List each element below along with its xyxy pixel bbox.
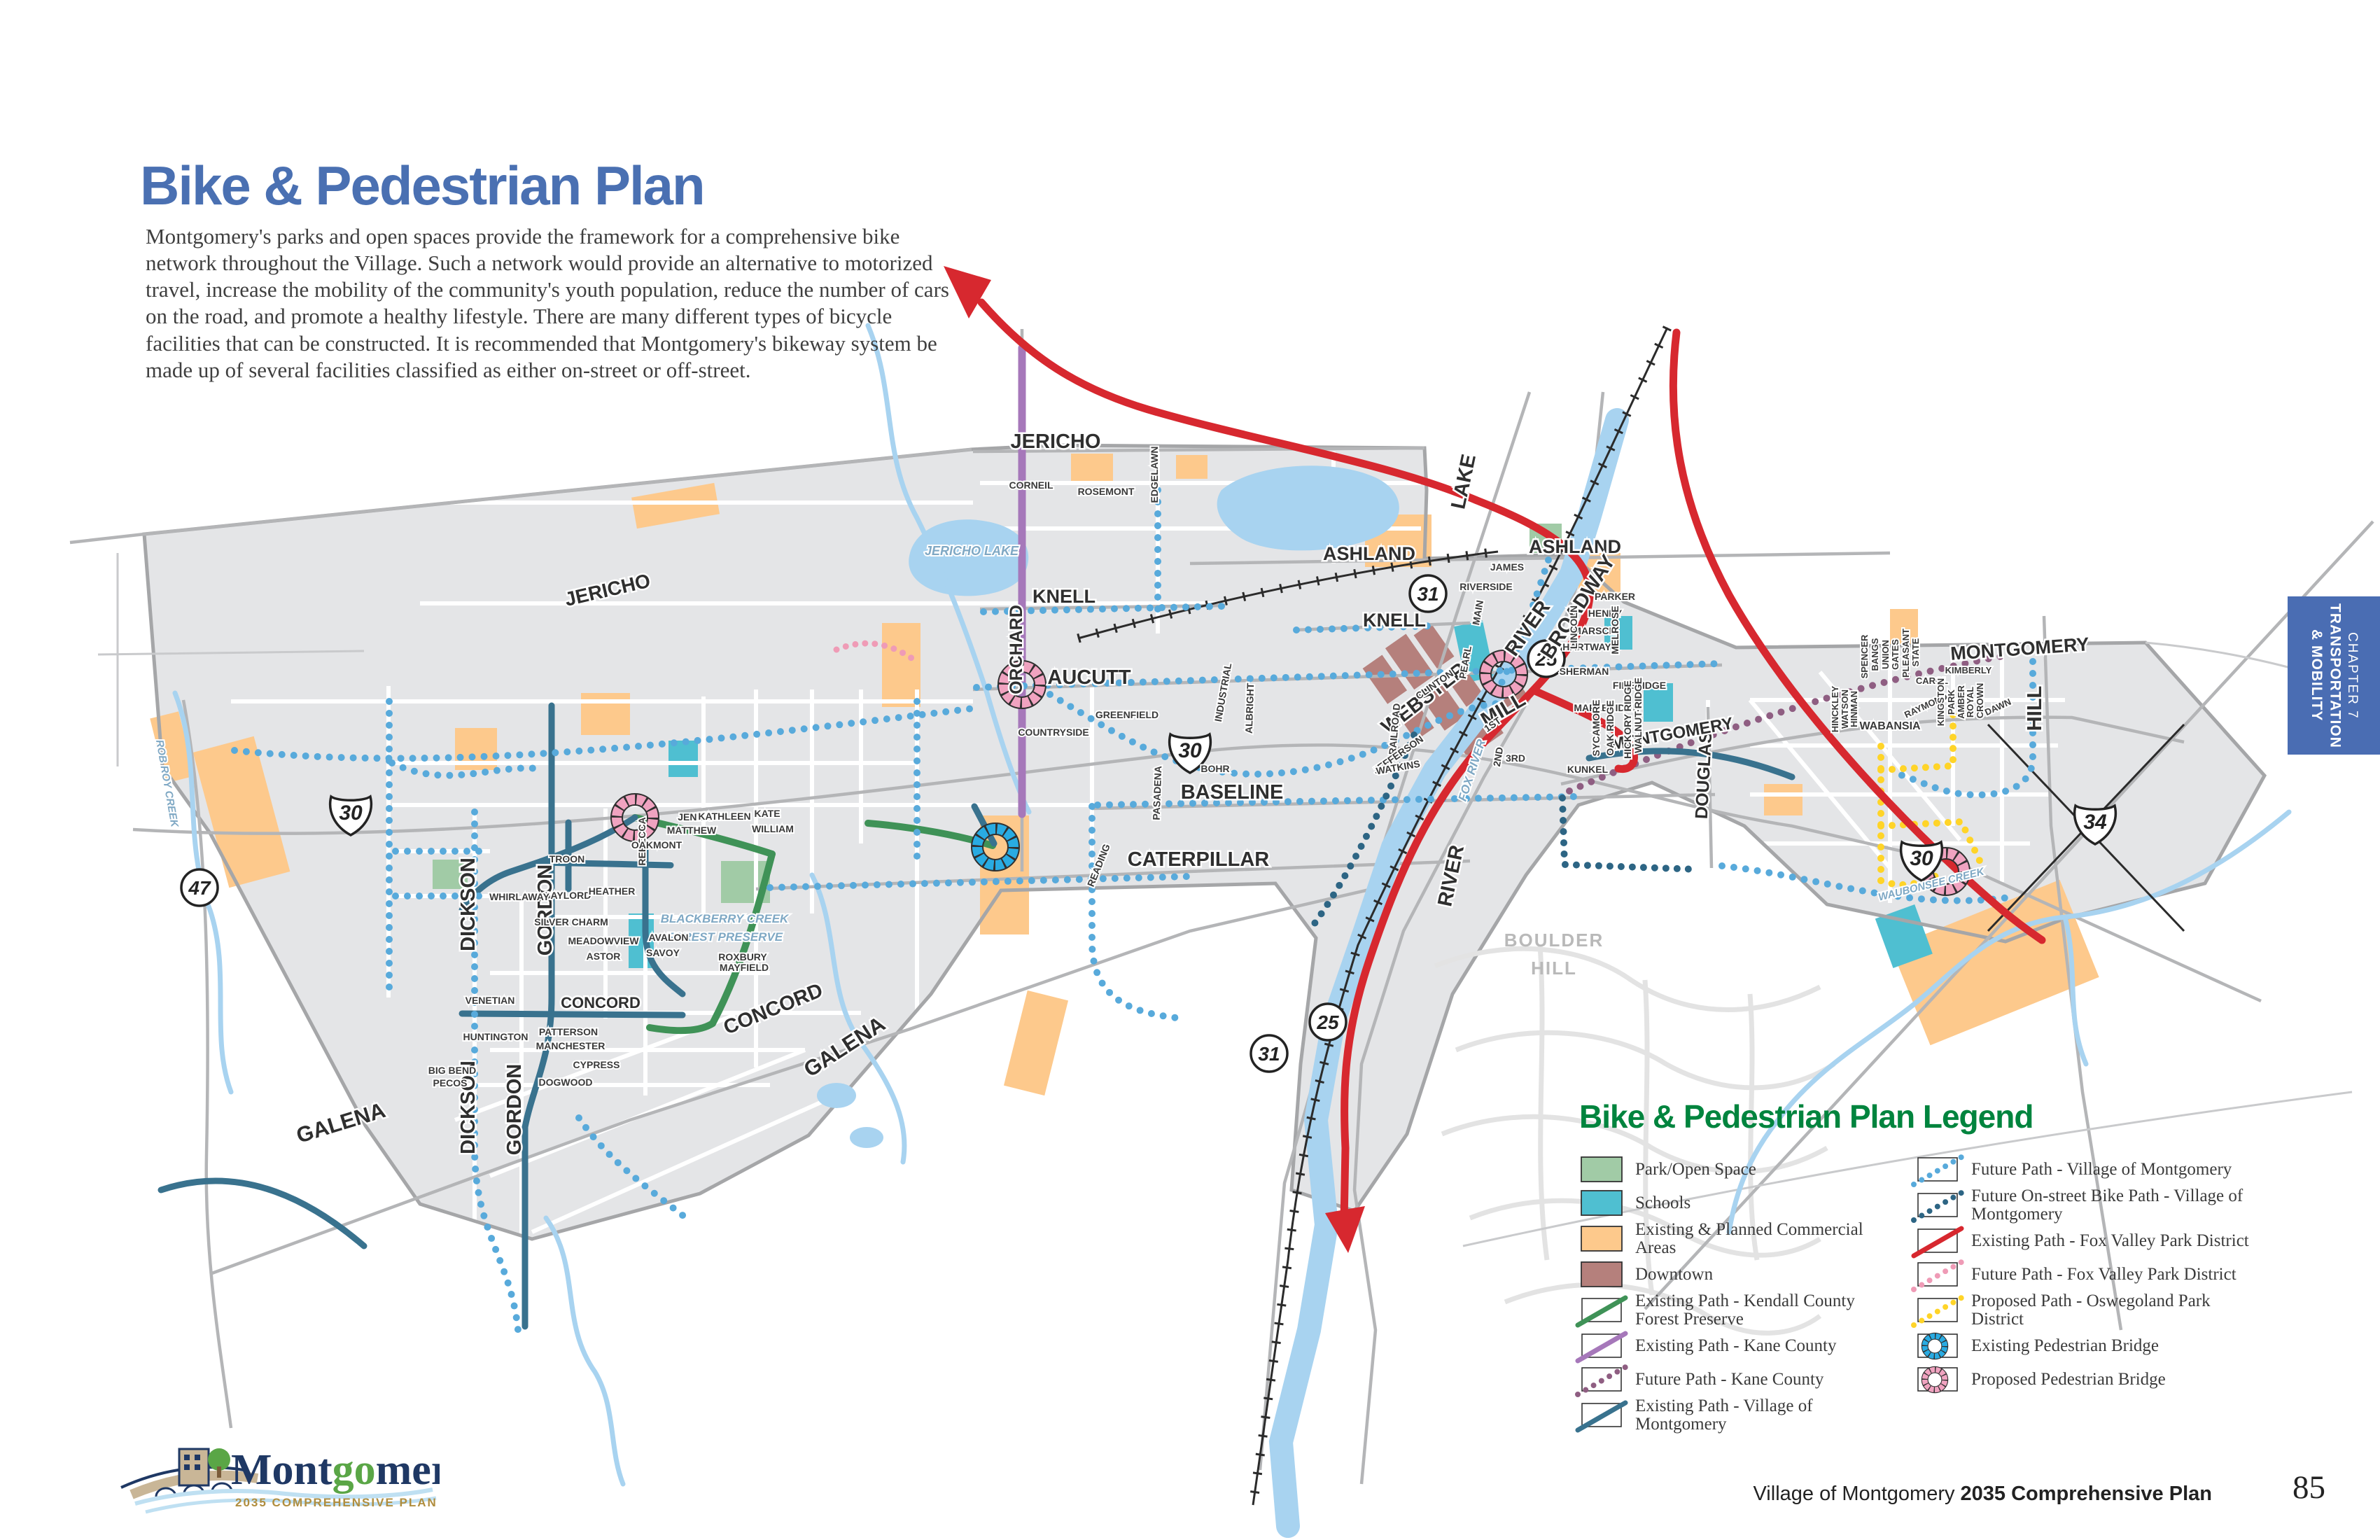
legend-item: Park/Open Space xyxy=(1579,1154,1901,1186)
map-label: WABANSIA xyxy=(1859,720,1921,732)
legend-swatch xyxy=(1579,1223,1631,1255)
bridge-icon xyxy=(1915,1330,1967,1362)
legend-item: Proposed Pedestrian Bridge xyxy=(1915,1364,2265,1396)
legend-swatch xyxy=(1915,1259,1967,1291)
map-label: MANCHESTER xyxy=(536,1040,605,1051)
map-label: DOGWOOD xyxy=(539,1077,593,1088)
legend-column-right: Future Path - Village of MontgomeryFutur… xyxy=(1915,1154,2265,1397)
legend-swatch xyxy=(1915,1225,1967,1257)
document-page: 303030344731312525 JERICHOJERICHOASHLAND… xyxy=(0,0,2380,1540)
map-label: BOHR xyxy=(1200,763,1229,774)
map-label: MELROSE xyxy=(1609,605,1620,654)
svg-text:30: 30 xyxy=(1910,847,1933,870)
map-label: ROXBURY xyxy=(718,951,767,962)
map-label: JERICHO LAKE xyxy=(925,544,1019,558)
map-label: LINCOLN xyxy=(1568,605,1579,649)
legend-item: Future Path - Fox Valley Park District xyxy=(1915,1259,2265,1291)
map-label: SHERMAN xyxy=(1560,666,1609,677)
legend-label: Future Path - Kane County xyxy=(1631,1371,1823,1389)
map-label: KATHLEEN xyxy=(698,811,750,822)
bridge-icon xyxy=(1915,1364,1967,1396)
legend-item: Existing Path - Village of Montgomery xyxy=(1579,1397,1901,1434)
map-label: SYCAMORE xyxy=(1590,700,1602,757)
map-label: SILVER CHARM xyxy=(534,916,608,927)
map-label: SPENCER xyxy=(1859,634,1870,678)
chapter-number: CHAPTER 7 xyxy=(2344,596,2360,755)
legend-label: Proposed Pedestrian Bridge xyxy=(1967,1371,2166,1389)
map-label: BOULDER xyxy=(1504,930,1604,951)
legend-label: Park/Open Space xyxy=(1631,1161,1756,1179)
legend-label: Existing Path - Village of Montgomery xyxy=(1631,1397,1901,1434)
svg-text:34: 34 xyxy=(2083,811,2107,834)
legend-swatch xyxy=(1579,1259,1631,1291)
legend-label: Downtown xyxy=(1631,1266,1713,1284)
map-label: 3RD xyxy=(1506,752,1525,764)
legend-item: Existing & Planned Commercial Areas xyxy=(1579,1221,1901,1257)
map-label: GORDON xyxy=(534,864,556,956)
legend-swatch xyxy=(1579,1187,1631,1219)
map-label: PECOS xyxy=(433,1077,467,1088)
map-label: CONCORD xyxy=(561,994,640,1011)
footer-credit: Village of Montgomery 2035 Comprehensive… xyxy=(1753,1483,2212,1506)
map-label: MEADOWVIEW xyxy=(568,935,639,946)
map-label: HICKORY RIDGE xyxy=(1622,680,1633,759)
map-label: AUCUTT xyxy=(1047,666,1130,689)
logo-mill-building xyxy=(179,1449,209,1485)
map-label: HINCKLEY xyxy=(1830,685,1840,732)
map-label: PASADENA xyxy=(1151,766,1164,820)
legend-label: Existing Path - Fox Valley Park District xyxy=(1967,1232,2249,1250)
map-label: JERICHO xyxy=(1011,430,1101,453)
map-label: BASELINE xyxy=(1181,781,1284,804)
map-label: KATE xyxy=(754,808,780,819)
map-label: WILLIAM xyxy=(752,823,794,834)
chapter-tab: CHAPTER 7 TRANSPORTATION & MOBILITY xyxy=(2288,596,2380,755)
map-label: GREENFIELD xyxy=(1095,709,1158,720)
map-label: CORNEIL xyxy=(1009,479,1053,491)
map-label: ASHLAND xyxy=(1323,543,1415,564)
map-label: HEATHER xyxy=(589,885,636,897)
map-label: COUNTRYSIDE xyxy=(1018,727,1088,738)
map-label: VENETIAN xyxy=(465,995,515,1006)
map-label: TROON xyxy=(549,853,585,864)
legend-label: Existing Path - Kane County xyxy=(1631,1337,1836,1355)
map-label: GAYLORD xyxy=(543,890,591,901)
route-shield-25: 25 xyxy=(1310,1004,1346,1040)
legend-label: Future On-street Bike Path - Village of … xyxy=(1967,1187,2265,1224)
legend-swatch xyxy=(1579,1330,1631,1362)
svg-text:31: 31 xyxy=(1417,583,1438,605)
legend-item: Existing Path - Kane County xyxy=(1579,1330,1901,1362)
map-label: KIMBERLY xyxy=(1945,665,1992,675)
legend-label: Proposed Path - Oswegoland Park District xyxy=(1967,1292,2265,1329)
legend-item: Existing Pedestrian Bridge xyxy=(1915,1330,2265,1362)
map-label: ROSEMONT xyxy=(1078,486,1135,497)
map-label: MATTHEW xyxy=(667,825,717,836)
legend-label: Schools xyxy=(1631,1194,1690,1212)
map-label: KINGSTON xyxy=(1935,678,1946,726)
map-label: HUNTINGTON xyxy=(463,1031,528,1042)
map-label: GATES xyxy=(1890,639,1900,670)
map-label: WALNUT RIDGE xyxy=(1632,678,1644,753)
map-label: SAVOY xyxy=(646,947,680,958)
map-label: PARKER xyxy=(1595,591,1635,602)
page-number: 85 xyxy=(2292,1469,2325,1506)
map-label: MAYFIELD xyxy=(720,962,769,973)
svg-text:30: 30 xyxy=(339,801,363,825)
legend-item: Future Path - Village of Montgomery xyxy=(1915,1154,2265,1186)
legend-swatch xyxy=(1579,1294,1631,1326)
legend-item: Future On-street Bike Path - Village of … xyxy=(1915,1187,2265,1224)
route-shield-47: 47 xyxy=(181,869,218,906)
route-shield-31: 31 xyxy=(1410,575,1446,612)
legend-item: Schools xyxy=(1579,1187,1901,1219)
map-label: UNION xyxy=(1880,640,1891,669)
legend-item: Future Path - Kane County xyxy=(1579,1364,1901,1396)
legend-label: Existing Pedestrian Bridge xyxy=(1967,1337,2159,1355)
map-label: BLACKBERRY CREEK xyxy=(661,912,790,925)
legend-label: Existing & Planned Commercial Areas xyxy=(1631,1221,1901,1257)
logo-tagline: 2035 COMPREHENSIVE PLAN xyxy=(235,1496,437,1509)
map-label: AVALON xyxy=(648,932,688,943)
map-label: CATERPILLAR xyxy=(1128,848,1270,871)
legend-title: Bike & Pedestrian Plan Legend xyxy=(1579,1098,2033,1135)
map-label: OAK RIDGE xyxy=(1604,700,1616,755)
map-label: STATE xyxy=(1910,638,1921,666)
legend-item: Proposed Path - Oswegoland Park District xyxy=(1915,1292,2265,1329)
chapter-name: TRANSPORTATION & MOBILITY xyxy=(2307,596,2344,755)
legend-swatch xyxy=(1579,1399,1631,1431)
legend-item: Existing Path - Fox Valley Park District xyxy=(1915,1225,2265,1257)
map-label: BIG BEND xyxy=(428,1065,476,1076)
map-label: HILL xyxy=(1531,958,1577,979)
svg-text:47: 47 xyxy=(188,877,211,899)
map-label: EDGELAWN xyxy=(1149,447,1160,503)
legend-label: Existing Path - Kendall County Forest Pr… xyxy=(1631,1292,1901,1329)
map-label: HINMAN xyxy=(1849,691,1859,727)
map-label: GORDON xyxy=(503,1064,526,1156)
svg-text:31: 31 xyxy=(1258,1043,1280,1065)
map-label: WHIRLAWAY xyxy=(489,891,549,902)
map-label: JAMES xyxy=(1490,561,1524,573)
map-label: ALBRIGHT xyxy=(1243,682,1256,734)
svg-text:30: 30 xyxy=(1178,739,1202,762)
map-label: DICKSON xyxy=(457,857,479,951)
legend-label: Future Path - Fox Valley Park District xyxy=(1967,1266,2236,1284)
legend-swatch xyxy=(1579,1364,1631,1396)
map-label: PARK xyxy=(1946,689,1956,714)
svg-text:25: 25 xyxy=(1316,1011,1339,1033)
map-label: KNELL xyxy=(1363,610,1426,631)
legend-swatch xyxy=(1579,1154,1631,1186)
map-label: CYPRESS xyxy=(573,1059,620,1070)
page-title: Bike & Pedestrian Plan xyxy=(140,154,704,218)
map-label: HILL xyxy=(2024,686,2046,731)
map-label: PLEASANT xyxy=(1900,629,1911,678)
map-label: ASHLAND xyxy=(1529,536,1621,557)
legend-item: Downtown xyxy=(1579,1259,1901,1291)
map-label: ORCHARD xyxy=(1007,605,1026,694)
legend-item: Existing Path - Kendall County Forest Pr… xyxy=(1579,1292,1901,1329)
map-label: RIVERSIDE xyxy=(1459,581,1512,592)
legend-swatch xyxy=(1915,1294,1967,1326)
map-label: ASTOR xyxy=(587,951,621,962)
montgomery-logo: Montgomery 2035 COMPREHENSIVE PLAN xyxy=(118,1421,440,1526)
north-lake xyxy=(1217,465,1399,550)
map-label: KNELL xyxy=(1032,586,1095,607)
route-shield-31: 31 xyxy=(1251,1035,1287,1072)
intro-paragraph: Montgomery's parks and open spaces provi… xyxy=(146,223,968,384)
map-label: KUNKEL xyxy=(1567,764,1609,775)
legend-swatch xyxy=(1915,1154,1967,1186)
map-label: CROWN xyxy=(1975,683,1985,719)
legend-column-left: Park/Open SpaceSchoolsExisting & Planned… xyxy=(1579,1154,1901,1435)
map-label: PATTERSON xyxy=(539,1026,598,1037)
legend-swatch xyxy=(1915,1189,1967,1221)
logo-wordmark: Montgomery xyxy=(231,1446,440,1494)
map-label: BANGS xyxy=(1870,638,1880,671)
map-label: OAKMONT xyxy=(631,839,682,850)
legend-label: Future Path - Village of Montgomery xyxy=(1967,1161,2232,1179)
map-label: ROYAL xyxy=(1965,687,1975,717)
